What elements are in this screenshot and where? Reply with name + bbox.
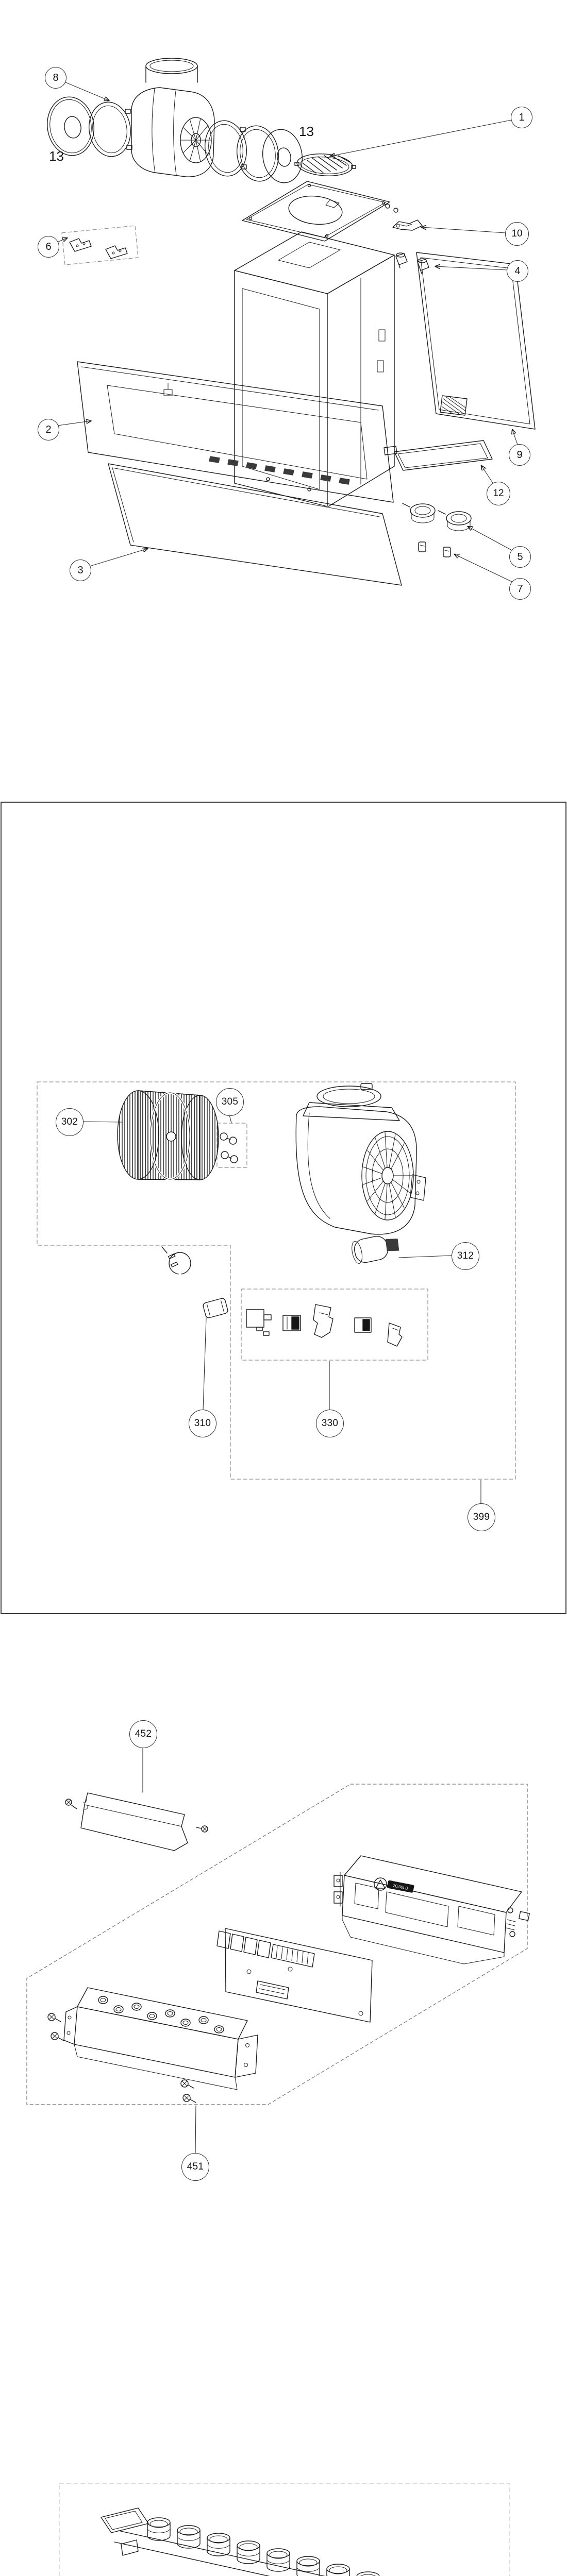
mounting-brackets-6-drawing bbox=[62, 226, 138, 265]
callout-399: 399 bbox=[468, 1503, 495, 1531]
glass-panel-3-drawing bbox=[108, 464, 402, 585]
diagram-line-art: 20.00LB bbox=[0, 0, 567, 2576]
front-frame-2-drawing bbox=[77, 362, 393, 502]
control-pcb-drawing bbox=[217, 1928, 372, 2022]
blower-group-dashed-outline-399 bbox=[37, 1082, 515, 1479]
lamp-clips-7-drawing bbox=[419, 542, 451, 557]
section1-leader-lines bbox=[57, 82, 518, 582]
top-mounting-plate-drawing bbox=[242, 181, 398, 241]
rubber-feet-4-drawing bbox=[396, 253, 429, 274]
callout-3: 3 bbox=[70, 560, 91, 581]
damper-flap-10-drawing bbox=[393, 220, 422, 230]
connector-kit-330-drawing bbox=[246, 1304, 402, 1346]
control-group-dashed-outline bbox=[27, 1784, 527, 2105]
motor-isolators-305-drawing bbox=[220, 1133, 238, 1163]
knob-bezels bbox=[147, 2518, 409, 2576]
blower-wheel-302-drawing bbox=[118, 1091, 219, 1180]
callout-9: 9 bbox=[509, 444, 530, 466]
knob-bezel-rail-drawing bbox=[101, 2508, 483, 2576]
control-bracket-451-drawing bbox=[48, 1988, 258, 2103]
callout-8: 8 bbox=[45, 67, 66, 89]
callout-4: 4 bbox=[507, 260, 528, 282]
callout-305: 305 bbox=[216, 1088, 244, 1116]
callout-330: 330 bbox=[316, 1410, 344, 1437]
section3-leader-lines bbox=[143, 1747, 196, 2153]
hood-body-drawing bbox=[235, 232, 394, 506]
callout-12: 12 bbox=[487, 482, 510, 505]
lamp-assemblies-5-drawing bbox=[403, 503, 471, 531]
callout-5: 5 bbox=[509, 546, 531, 568]
callout-10: 10 bbox=[505, 222, 529, 246]
parts-diagram-page: 20.00LB bbox=[0, 0, 567, 2576]
part-label-13-left: 13 bbox=[49, 148, 64, 164]
section2-border bbox=[1, 802, 566, 1614]
callout-7: 7 bbox=[509, 578, 531, 600]
damper-grille-drawing bbox=[295, 152, 356, 177]
capacitor-312-drawing bbox=[350, 1232, 401, 1265]
control-housing-drawing: 20.00LB bbox=[334, 1856, 529, 1964]
callout-310: 310 bbox=[189, 1410, 216, 1437]
callout-6: 6 bbox=[38, 236, 59, 258]
knob-group-dashed-outline bbox=[59, 2483, 509, 2576]
callout-2: 2 bbox=[38, 419, 59, 440]
blower-unit-drawing bbox=[44, 58, 306, 185]
callout-452: 452 bbox=[129, 1720, 157, 1748]
callout-312: 312 bbox=[452, 1242, 479, 1270]
callout-1: 1 bbox=[511, 107, 532, 128]
grease-filter-12-drawing bbox=[384, 440, 492, 470]
callout-451: 451 bbox=[181, 2153, 209, 2181]
callout-302: 302 bbox=[56, 1108, 84, 1136]
part-label-13-right: 13 bbox=[299, 124, 314, 140]
lamp-module-452-drawing bbox=[65, 1793, 208, 1851]
power-cord-310-drawing bbox=[162, 1247, 228, 1318]
motor-assembly-drawing bbox=[296, 1083, 426, 1234]
